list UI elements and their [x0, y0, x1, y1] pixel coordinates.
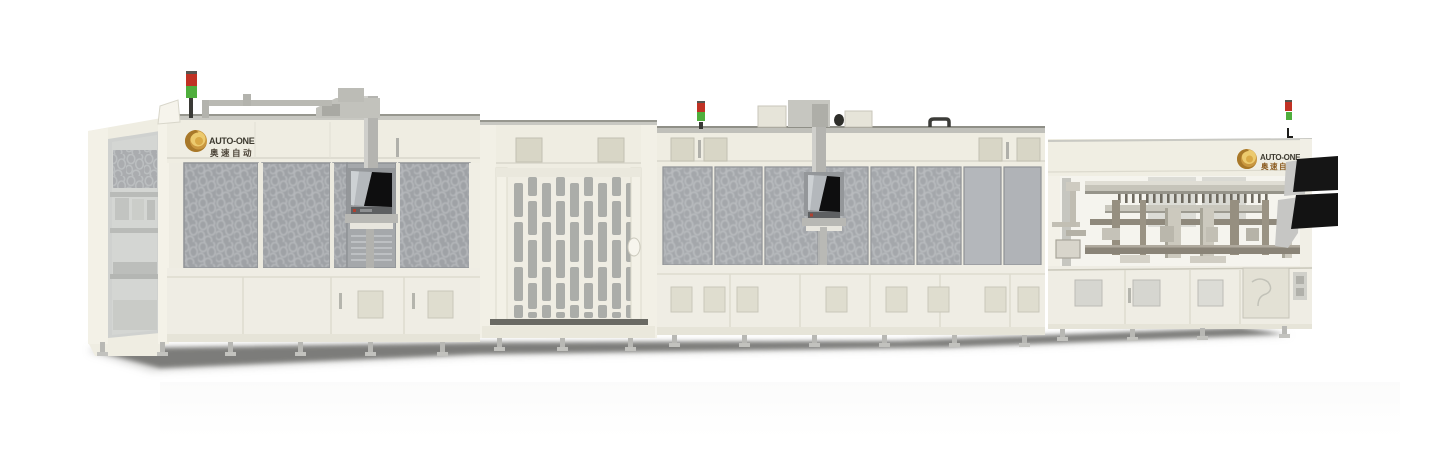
svg-text:AUTO-ONE: AUTO-ONE — [209, 136, 255, 146]
svg-text:奥速自动: 奥速自动 — [209, 148, 254, 158]
svg-text:AUTO-ONE: AUTO-ONE — [1260, 153, 1301, 162]
